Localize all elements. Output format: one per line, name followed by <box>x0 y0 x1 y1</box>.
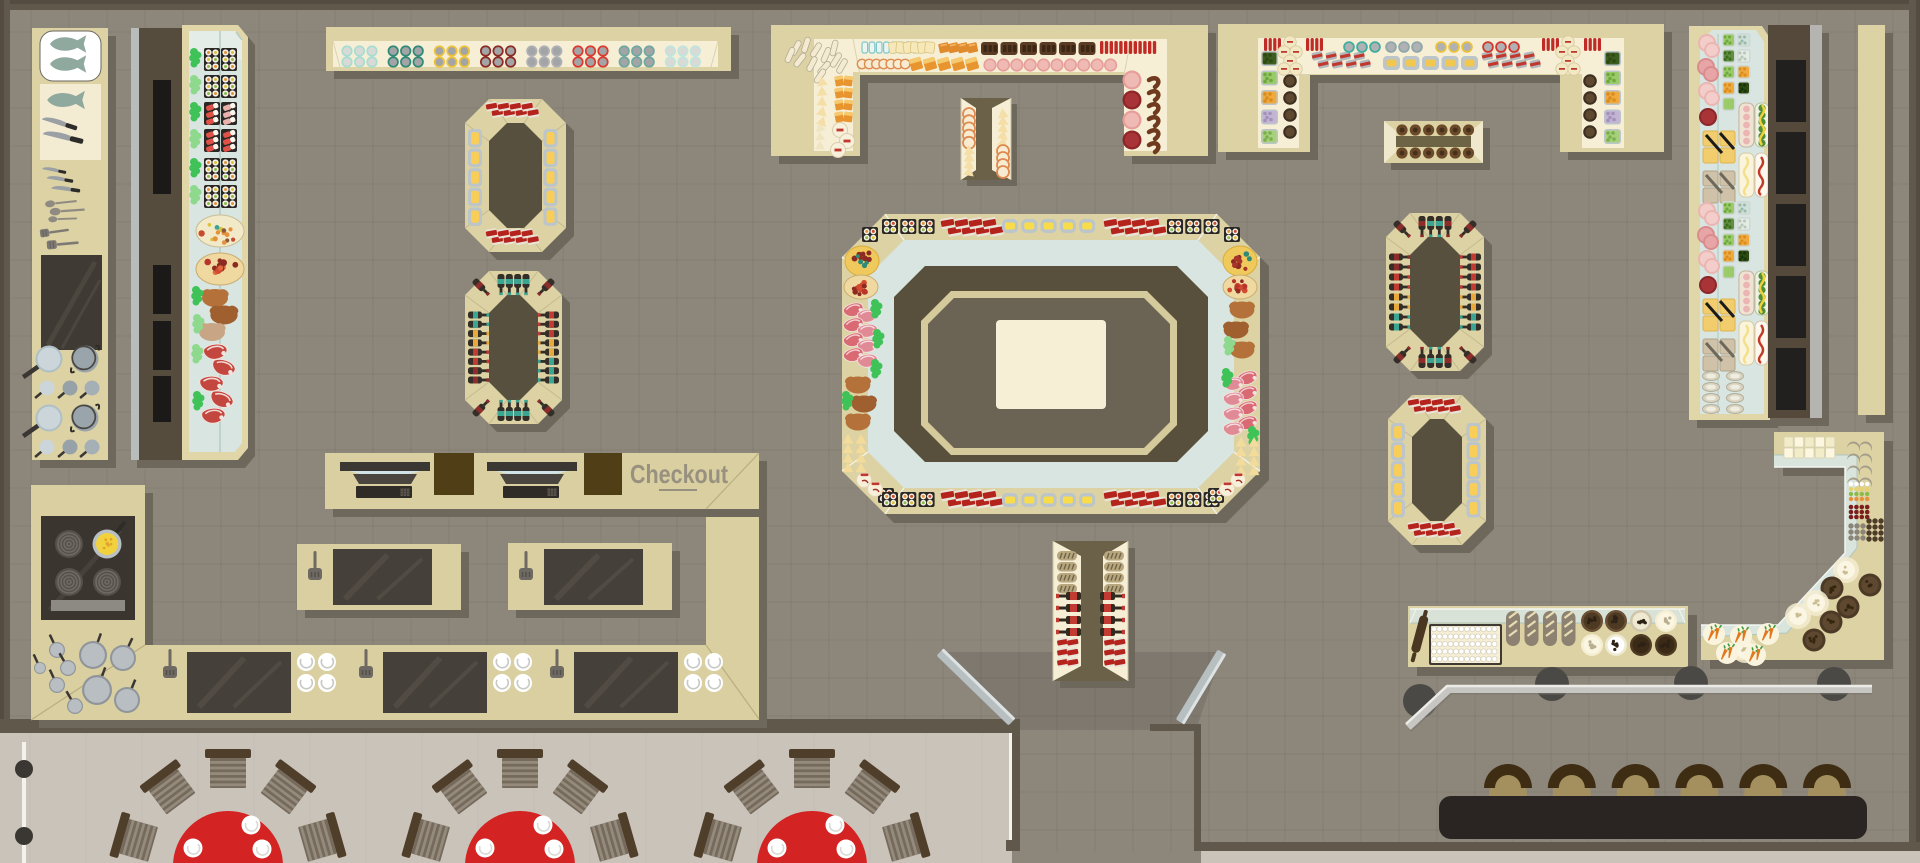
svg-text:Checkout: Checkout <box>630 459 728 489</box>
